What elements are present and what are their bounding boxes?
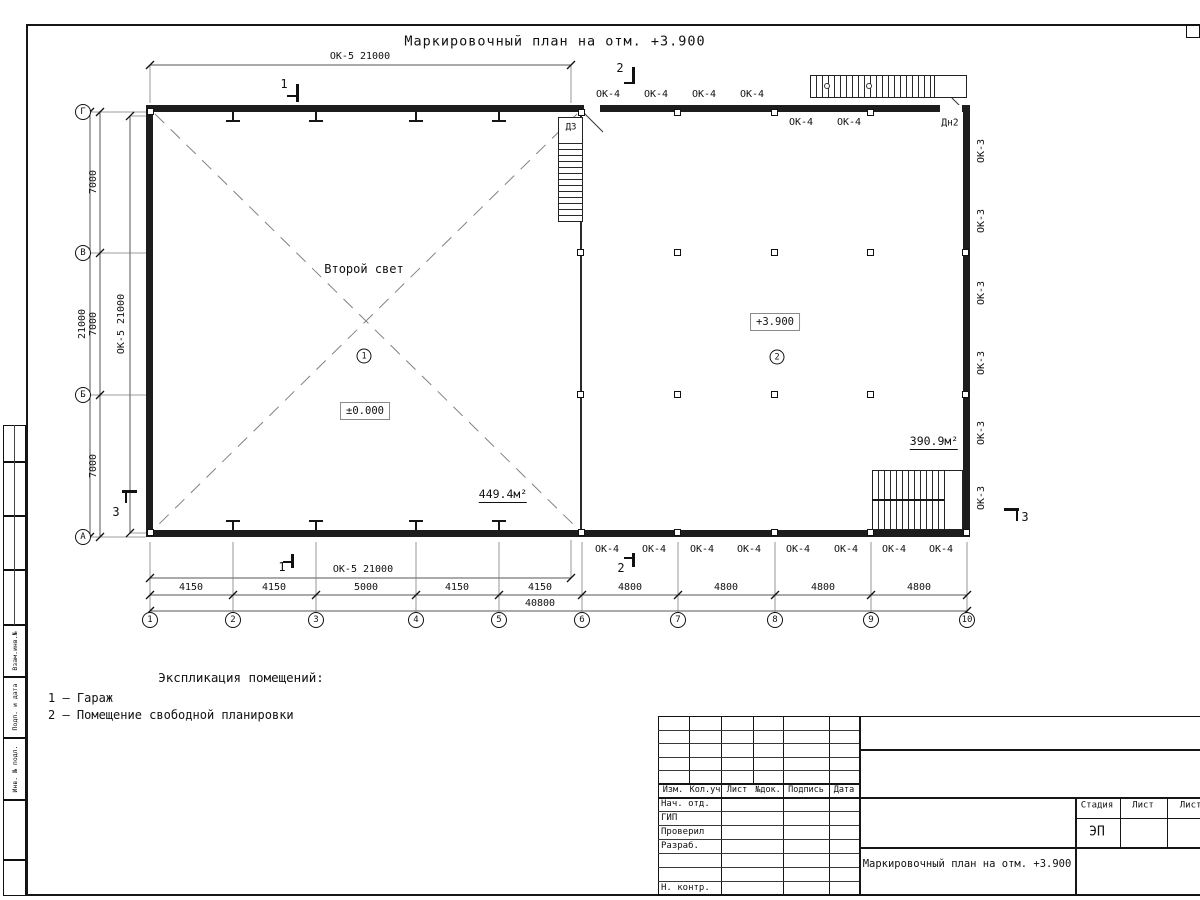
grid-col-7: 7 (670, 612, 686, 628)
title-block-line (859, 847, 1200, 849)
column-symbol (315, 522, 317, 530)
section-mark-3-label: 3 (112, 506, 119, 518)
grid-row-a: А (75, 529, 91, 545)
explication-item: 1 – Гараж (48, 692, 113, 704)
dim-span: 4150 (445, 583, 469, 593)
window-label-ok3: ОК-3 (977, 139, 987, 163)
stair-pivot (824, 83, 830, 89)
window-label-ok4: ОК-4 (789, 118, 813, 128)
tb-stage-col: Стадия (1081, 802, 1114, 811)
column-symbol (309, 120, 323, 122)
section-mark-1 (291, 554, 294, 568)
window-label-ok4: ОК-4 (644, 90, 668, 100)
stair-pivot (866, 83, 872, 89)
title-block-line (658, 730, 859, 731)
column-marker (578, 529, 585, 536)
section-mark-2 (632, 67, 635, 84)
window-label-ok4: ОК-4 (834, 545, 858, 555)
door-label-dn2: Дн2 (941, 118, 958, 128)
section-mark-3 (125, 490, 127, 503)
grid-col-label: 1 (147, 615, 152, 625)
window-label-ok4: ОК-4 (596, 90, 620, 100)
column-marker (963, 529, 970, 536)
grid-row-label: В (80, 248, 85, 258)
room1-name: Второй свет (324, 263, 403, 275)
section-mark-1-label: 1 (278, 561, 285, 573)
grid-row-g: Г (75, 104, 91, 120)
window-label-ok4: ОК-4 (837, 118, 861, 128)
section-mark-1-label: 1 (280, 78, 287, 90)
column-marker (867, 109, 874, 116)
room2-number-text: 2 (774, 352, 779, 362)
tb-stage-col: Листов (1180, 802, 1200, 811)
window-label-ok4: ОК-4 (786, 545, 810, 555)
column-symbol (232, 112, 234, 120)
dim-span: 4800 (907, 583, 931, 593)
grid-row-label: А (80, 532, 85, 542)
window-label-ok3: ОК-3 (977, 486, 987, 510)
grid-col-label: 5 (496, 615, 501, 625)
column-symbol (315, 112, 317, 120)
dim-total: 40800 (525, 599, 555, 609)
title-block-line (658, 743, 859, 744)
grid-col-4: 4 (408, 612, 424, 628)
tb-col-list: Лист (727, 786, 747, 795)
tb-col-data: Дата (834, 786, 854, 795)
door-opening-d3 (584, 105, 600, 112)
door-opening-dn2 (940, 105, 962, 112)
grid-col-9: 9 (863, 612, 879, 628)
title-block-line (658, 853, 859, 854)
section-mark-3-label: 3 (1021, 511, 1028, 523)
tb-stage-value: ЭП (1089, 826, 1105, 839)
column-symbol (232, 522, 234, 530)
room1-number: 1 (357, 349, 372, 364)
column-marker (578, 109, 585, 116)
title-block-line (859, 716, 861, 896)
room2-number: 2 (770, 350, 785, 365)
title-block-line (859, 749, 1200, 751)
tb-role-nachotd: Нач. отд. (661, 800, 710, 809)
room1-level: ±0.000 (340, 402, 390, 420)
grid-col-label: 4 (413, 615, 418, 625)
dim-span: 4150 (179, 583, 203, 593)
window-label-ok4: ОК-4 (882, 545, 906, 555)
title-block-line (1075, 818, 1200, 819)
room2-area: 390.9м² (910, 434, 958, 450)
wall-left (146, 105, 153, 537)
room2-level: +3.900 (750, 313, 800, 331)
wall-bottom (146, 530, 970, 537)
dim-span: 4150 (262, 583, 286, 593)
grid-col-label: 2 (230, 615, 235, 625)
grid-col-3: 3 (308, 612, 324, 628)
column-marker (867, 529, 874, 536)
wall-right (963, 105, 970, 537)
title-block-line (658, 881, 859, 882)
column-marker (962, 391, 969, 398)
grid-col-6: 6 (574, 612, 590, 628)
grid-col-1: 1 (142, 612, 158, 628)
title-block-line (689, 716, 690, 783)
column-marker (577, 391, 584, 398)
title-block-line (1167, 797, 1168, 847)
wall-top (146, 105, 970, 112)
explication-item: 2 – Помещение свободной планировки (48, 709, 294, 721)
title-block-line (658, 811, 859, 812)
grid-col-label: 6 (579, 615, 584, 625)
section-mark-3 (1016, 508, 1018, 521)
drawing-sheet: Взам.инв.№ Подп. и дата Инв. № подл. Мар… (0, 0, 1200, 900)
window-label-ok3: ОК-3 (977, 421, 987, 445)
window-label-ok4: ОК-4 (737, 545, 761, 555)
title-block-line (658, 770, 859, 771)
window-label-ok3: ОК-3 (977, 209, 987, 233)
title-block-line (658, 867, 859, 868)
column-symbol (415, 522, 417, 530)
column-marker (147, 108, 154, 115)
dim-bottom-window: ОК-5 21000 (333, 565, 393, 575)
column-marker (771, 249, 778, 256)
title-block-line (658, 797, 1200, 799)
dim-span-left: 7000 (89, 454, 99, 478)
title-block-line (1120, 797, 1121, 847)
column-symbol (415, 112, 417, 120)
column-marker (674, 109, 681, 116)
section-mark-2-label: 2 (616, 62, 623, 74)
tb-role-razrab: Разраб. (661, 842, 699, 851)
title-block-line (658, 757, 859, 758)
column-symbol (498, 112, 500, 120)
tb-col-koluch: Кол.уч (690, 786, 721, 795)
column-symbol (226, 120, 240, 122)
column-marker (867, 391, 874, 398)
column-marker (771, 391, 778, 398)
window-label-ok4: ОК-4 (740, 90, 764, 100)
column-marker (867, 249, 874, 256)
column-marker (674, 391, 681, 398)
grid-col-label: 3 (313, 615, 318, 625)
column-marker (674, 249, 681, 256)
tb-stage-col: Лист (1132, 802, 1154, 811)
window-label-ok4: ОК-4 (642, 545, 666, 555)
dim-span-left: 7000 (89, 170, 99, 194)
door-label-d3: Д3 (565, 124, 578, 133)
tb-col-izm: Изм. (663, 786, 683, 795)
window-label-ok4: ОК-4 (690, 545, 714, 555)
grid-row-b: Б (75, 387, 91, 403)
column-symbol (409, 120, 423, 122)
tb-col-ndok: №док. (755, 786, 781, 795)
tb-role-nkontr: Н. контр. (661, 884, 710, 893)
tb-doc-title: Маркировочный план на отм. +3.900 (863, 859, 1072, 870)
dim-span: 4800 (811, 583, 835, 593)
stair-bottom-right-landing (944, 470, 963, 530)
window-label-ok4: ОК-4 (929, 545, 953, 555)
column-marker (577, 249, 584, 256)
room1-area: 449.4м² (479, 487, 527, 503)
cross-dashed-lines (155, 114, 577, 528)
stair-bottom-right-landing-line (872, 499, 945, 501)
column-marker (771, 109, 778, 116)
column-marker (674, 529, 681, 536)
dim-span-left: 7000 (89, 312, 99, 336)
room1-number-text: 1 (361, 351, 366, 361)
dim-span: 4800 (714, 583, 738, 593)
title-block-line (658, 839, 859, 840)
stair-top-right-landing (934, 75, 967, 98)
grid-col-label: 7 (675, 615, 680, 625)
grid-col-5: 5 (491, 612, 507, 628)
grid-col-8: 8 (767, 612, 783, 628)
grid-col-label: 9 (868, 615, 873, 625)
section-mark-1 (296, 84, 299, 102)
column-marker (962, 249, 969, 256)
grid-col-label: 8 (772, 615, 777, 625)
stair-d3-steps (559, 138, 582, 221)
tb-role-gip: ГИП (661, 814, 677, 823)
dim-span: 5000 (354, 583, 378, 593)
grid-row-label: Г (80, 107, 85, 117)
dim-left-window: ОК-5 21000 (117, 294, 127, 354)
title-block-line (753, 716, 754, 783)
grid-col-2: 2 (225, 612, 241, 628)
dim-span: 4800 (618, 583, 642, 593)
grid-row-label: Б (80, 390, 85, 400)
window-label-ok4: ОК-4 (692, 90, 716, 100)
dim-span: 4150 (528, 583, 552, 593)
column-marker (147, 529, 154, 536)
window-label-ok3: ОК-3 (977, 281, 987, 305)
window-label-ok4: ОК-4 (595, 545, 619, 555)
column-marker (771, 529, 778, 536)
tb-col-podpis: Подпись (788, 786, 824, 795)
column-symbol (498, 522, 500, 530)
dim-top-window: ОК-5 21000 (330, 52, 390, 62)
section-mark-2 (632, 553, 635, 567)
explication-heading: Экспликация помещений: (158, 672, 324, 685)
tb-role-proveril: Проверил (661, 828, 704, 837)
title-block-line (658, 825, 859, 826)
grid-col-10: 10 (959, 612, 975, 628)
column-symbol (492, 120, 506, 122)
dim-left-total: 21000 (78, 309, 88, 339)
section-mark-2-label: 2 (617, 562, 624, 574)
grid-row-v: В (75, 245, 91, 261)
grid-col-label: 10 (962, 615, 973, 625)
window-label-ok3: ОК-3 (977, 351, 987, 375)
